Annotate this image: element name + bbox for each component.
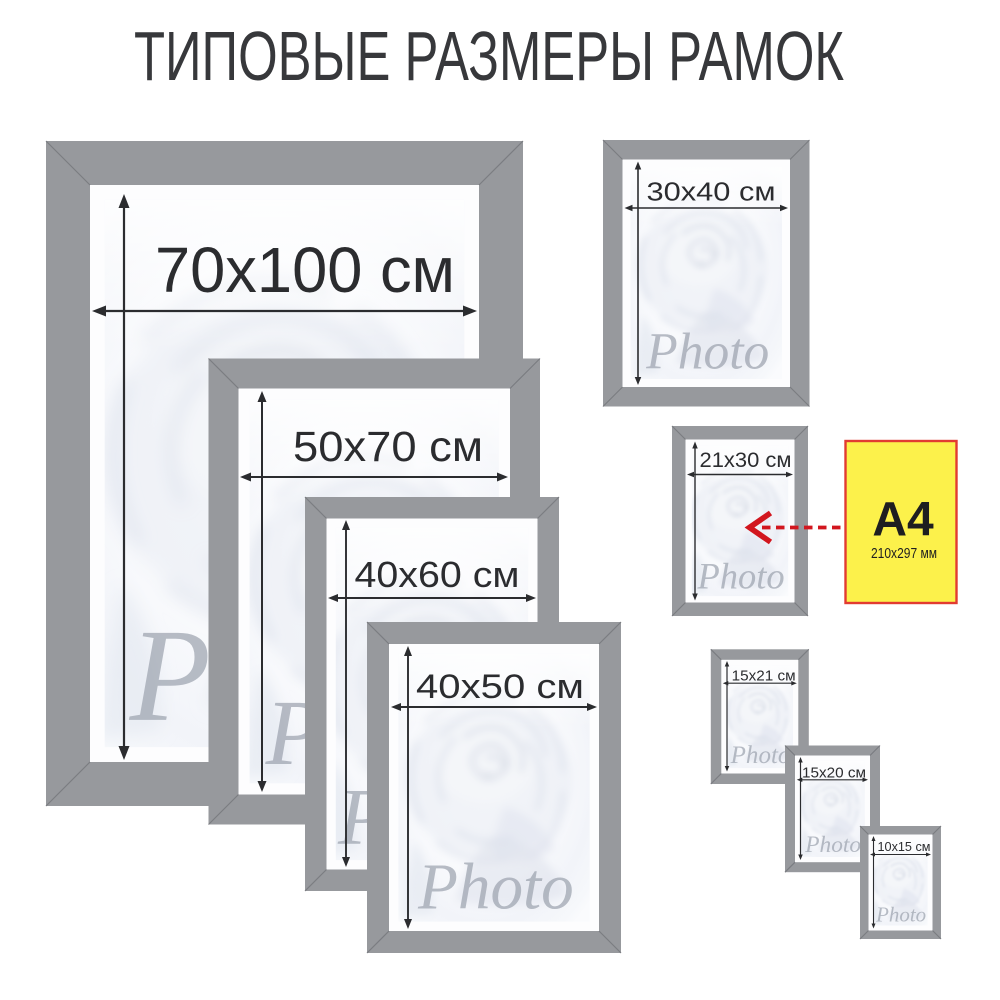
- svg-text:210x297 мм: 210x297 мм: [871, 546, 937, 562]
- svg-text:30x40 см: 30x40 см: [647, 179, 776, 207]
- svg-text:15x20 см: 15x20 см: [802, 764, 866, 781]
- svg-text:40x60 см: 40x60 см: [355, 554, 520, 595]
- svg-text:21x30 см: 21x30 см: [700, 448, 792, 472]
- svg-text:40x50 см: 40x50 см: [416, 668, 584, 706]
- svg-text:50x70 см: 50x70 см: [293, 424, 483, 471]
- svg-text:70x100 см: 70x100 см: [155, 234, 455, 306]
- svg-text:15x21 см: 15x21 см: [732, 668, 796, 685]
- svg-text:A4: A4: [872, 494, 934, 547]
- svg-text:10x15 см: 10x15 см: [878, 839, 931, 854]
- svg-text:ТИПОВЫЕ РАЗМЕРЫ РАМОК: ТИПОВЫЕ РАЗМЕРЫ РАМОК: [134, 17, 844, 95]
